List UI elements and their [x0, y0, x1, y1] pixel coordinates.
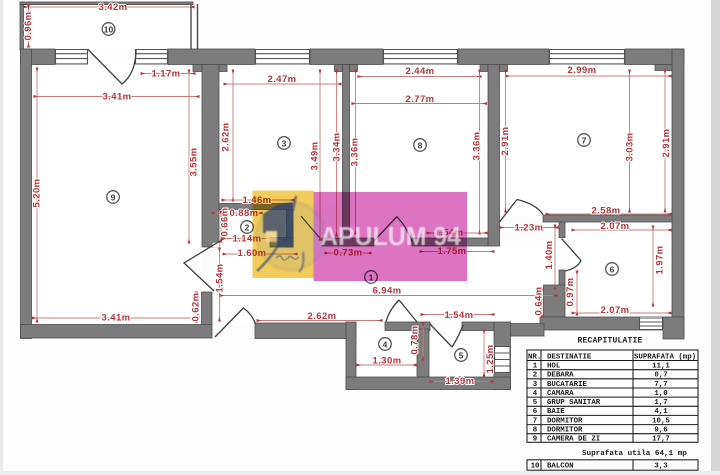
- svg-text:NR.: NR.: [528, 353, 541, 361]
- svg-text:17,7: 17,7: [652, 436, 670, 444]
- svg-text:1.97m: 1.97m: [655, 246, 666, 275]
- svg-text:DESTINATIE: DESTINATIE: [547, 353, 592, 361]
- svg-text:6.94m: 6.94m: [373, 286, 402, 297]
- svg-text:3.41m: 3.41m: [102, 313, 131, 324]
- svg-text:0,7: 0,7: [654, 372, 667, 380]
- svg-text:0.97m: 0.97m: [565, 278, 576, 307]
- svg-text:7,7: 7,7: [654, 381, 667, 389]
- svg-text:1,0: 1,0: [654, 390, 668, 398]
- svg-text:2.99m: 2.99m: [568, 65, 597, 76]
- svg-text:5: 5: [459, 351, 464, 361]
- svg-text:RECAPITULATIE: RECAPITULATIE: [577, 337, 642, 346]
- svg-text:1.39m: 1.39m: [446, 376, 475, 387]
- svg-text:0.66m: 0.66m: [220, 208, 231, 237]
- svg-text:0.62m: 0.62m: [191, 293, 202, 322]
- svg-text:8: 8: [533, 427, 538, 435]
- svg-text:1.25m: 1.25m: [485, 345, 496, 374]
- svg-text:2.44m: 2.44m: [406, 66, 435, 77]
- svg-text:1.54m: 1.54m: [215, 264, 226, 293]
- svg-text:CAMERA DE ZI: CAMERA DE ZI: [547, 436, 600, 444]
- svg-text:DORMITOR: DORMITOR: [547, 427, 583, 435]
- svg-text:6: 6: [610, 265, 615, 275]
- svg-text:SUPRAFATA (mp): SUPRAFATA (mp): [634, 353, 696, 361]
- svg-text:0.64m: 0.64m: [534, 287, 545, 316]
- svg-text:DEBARA: DEBARA: [547, 372, 574, 380]
- svg-text:3.41m: 3.41m: [103, 92, 132, 103]
- svg-text:4,1: 4,1: [654, 408, 668, 416]
- svg-text:3.34m: 3.34m: [332, 133, 343, 162]
- svg-text:3: 3: [282, 139, 287, 149]
- svg-text:6: 6: [533, 408, 538, 416]
- svg-text:APULUM 94: APULUM 94: [320, 221, 462, 251]
- svg-text:3.55m: 3.55m: [189, 148, 200, 177]
- svg-text:9: 9: [111, 193, 116, 203]
- svg-text:1.54m: 1.54m: [445, 310, 474, 321]
- svg-text:3: 3: [533, 381, 538, 389]
- svg-text:GRUP SANITAR: GRUP SANITAR: [547, 399, 601, 407]
- svg-text:1.40m: 1.40m: [544, 241, 555, 270]
- svg-text:2.07m: 2.07m: [601, 305, 630, 316]
- svg-text:9: 9: [533, 436, 537, 444]
- svg-text:3.36m: 3.36m: [350, 138, 361, 167]
- svg-text:2.91m: 2.91m: [500, 127, 511, 156]
- svg-text:1,7: 1,7: [654, 399, 667, 407]
- svg-text:2.58m: 2.58m: [592, 206, 621, 217]
- svg-text:BUCATARIE: BUCATARIE: [547, 381, 587, 389]
- svg-text:0.78m: 0.78m: [410, 326, 421, 355]
- svg-text:4: 4: [383, 340, 388, 350]
- svg-text:7: 7: [533, 417, 537, 425]
- svg-text:4: 4: [533, 390, 538, 398]
- svg-text:9,6: 9,6: [654, 427, 668, 435]
- svg-text:2.47m: 2.47m: [268, 74, 297, 85]
- svg-text:BALCON: BALCON: [547, 463, 574, 471]
- svg-text:11,1: 11,1: [652, 363, 670, 371]
- svg-text:3.42m: 3.42m: [99, 2, 128, 13]
- svg-text:2.77m: 2.77m: [406, 94, 435, 105]
- svg-text:3.36m: 3.36m: [472, 132, 483, 161]
- svg-text:10,5: 10,5: [652, 417, 670, 425]
- svg-text:3.03m: 3.03m: [625, 133, 636, 162]
- svg-text:0.96m: 0.96m: [23, 12, 34, 41]
- svg-text:1: 1: [533, 363, 538, 371]
- svg-text:1.17m: 1.17m: [152, 69, 181, 80]
- svg-text:HOL: HOL: [547, 363, 561, 371]
- svg-text:1.23m: 1.23m: [515, 223, 544, 234]
- svg-text:DORMITOR: DORMITOR: [547, 417, 583, 425]
- svg-text:CAMARA: CAMARA: [547, 390, 574, 398]
- svg-text:7: 7: [582, 136, 587, 146]
- svg-text:5: 5: [533, 399, 538, 407]
- svg-text:10: 10: [104, 25, 114, 35]
- svg-text:BAIE: BAIE: [547, 408, 565, 416]
- svg-text:2.91m: 2.91m: [661, 129, 672, 158]
- svg-text:5.20m: 5.20m: [32, 179, 43, 208]
- svg-text:1.30m: 1.30m: [373, 356, 402, 367]
- svg-text:Suprafata utila 64,1 mp: Suprafata utila 64,1 mp: [582, 450, 687, 458]
- svg-text:3,3: 3,3: [654, 463, 668, 471]
- svg-text:8: 8: [418, 141, 423, 151]
- svg-text:2.07m: 2.07m: [601, 221, 630, 232]
- svg-text:2: 2: [533, 372, 537, 380]
- svg-text:3.49m: 3.49m: [310, 142, 321, 171]
- svg-text:2: 2: [245, 223, 250, 233]
- svg-text:10: 10: [531, 463, 540, 471]
- svg-text:2.62m: 2.62m: [308, 311, 337, 322]
- svg-text:2.62m: 2.62m: [221, 123, 232, 152]
